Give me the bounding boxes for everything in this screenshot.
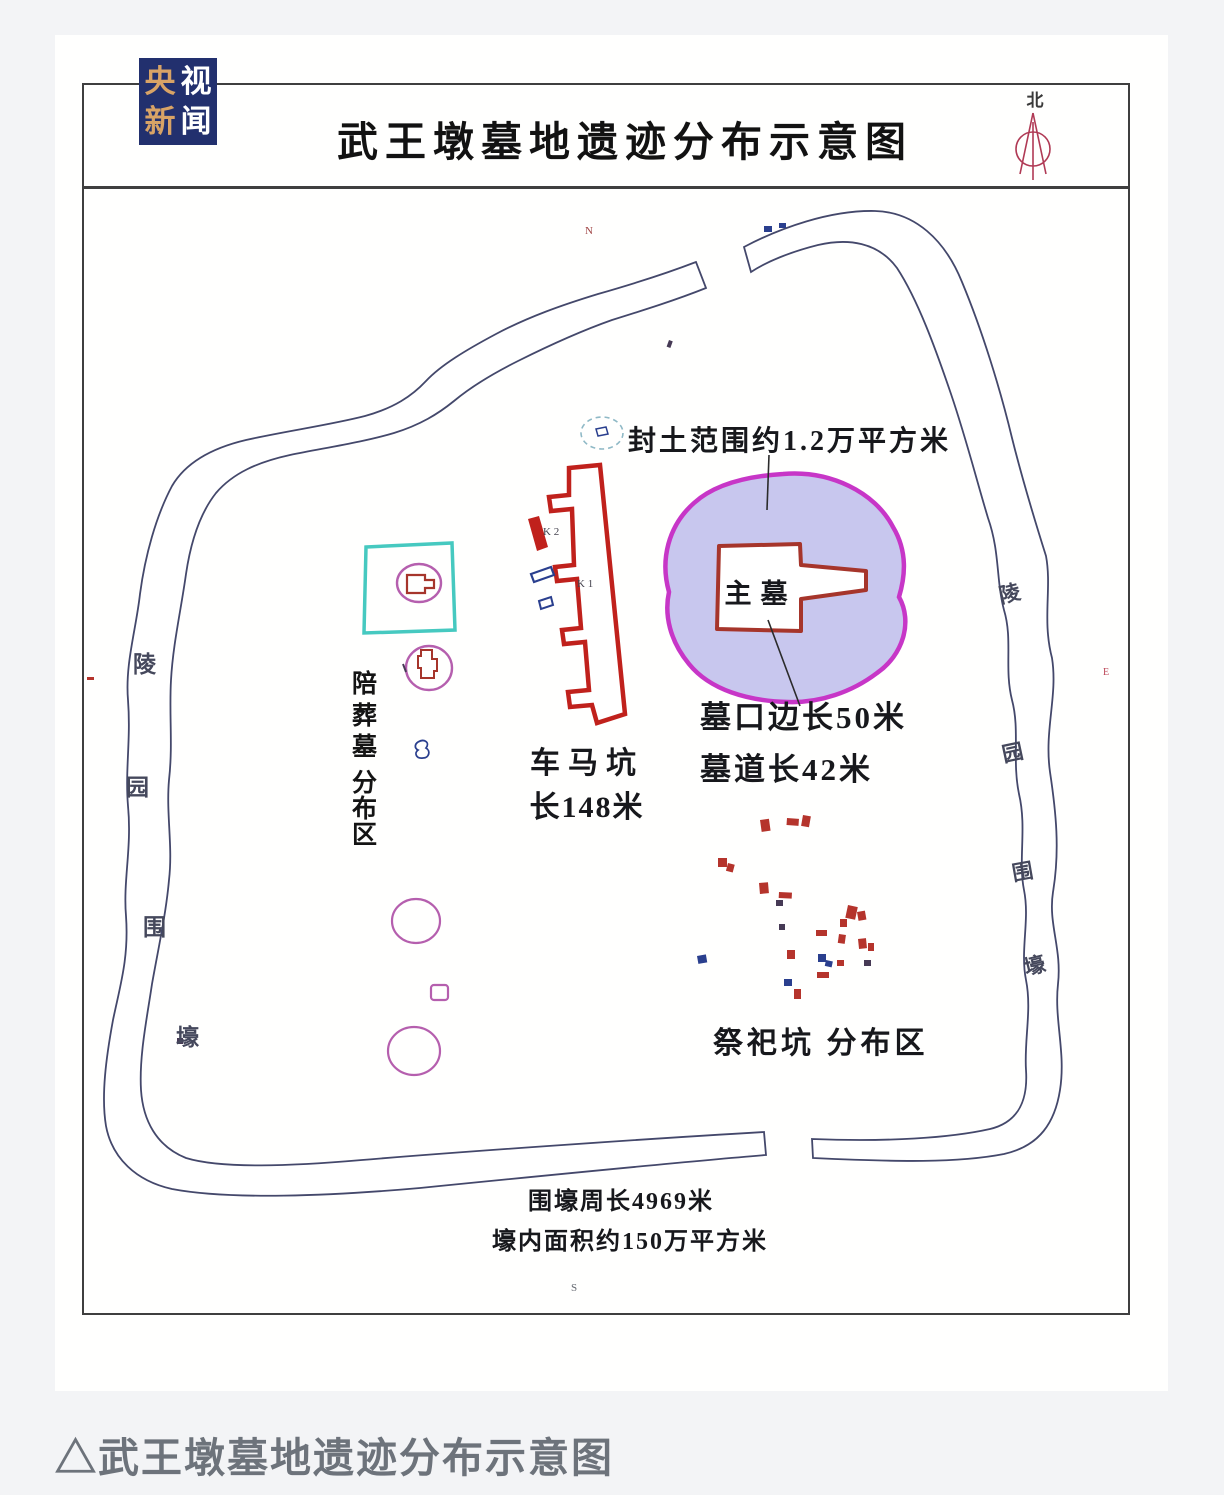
tiny-mark-n: N (585, 225, 593, 237)
tomb-mouth-label: 墓口边长50米 (700, 692, 907, 737)
cctv-news-logo: 央 视 新 闻 (139, 58, 217, 145)
moat-left-char-2: 围 (143, 908, 166, 942)
moat-left-char-0: 陵 (133, 645, 156, 679)
inner-area-label: 壕内面积约150万平方米 (492, 1221, 768, 1256)
accompany-char-2: 墓 (352, 727, 377, 763)
accompany-char-5: 区 (352, 815, 377, 851)
k1-label: K 1 (577, 578, 593, 590)
accompany-char-0: 陪 (352, 664, 377, 700)
fengtu-label: 封土范围约1.2万平方米 (628, 419, 951, 459)
tiny-mark-s: S (571, 1282, 577, 1294)
logo-char: 闻 (181, 106, 212, 137)
main-tomb-label: 主墓 (718, 572, 803, 611)
news-image-page: 央 视 新 闻 武王墩墓地遗迹分布示意图 北 封土范围约1.2万平方米 主墓 墓… (0, 0, 1224, 1495)
chariot-pit-label-line1: 车马坑 (512, 738, 662, 782)
logo-char: 视 (181, 66, 212, 97)
north-label: 北 (1020, 86, 1050, 111)
perimeter-label: 围壕周长4969米 (528, 1181, 714, 1216)
map-frame (82, 83, 1130, 1315)
tomb-passage-label: 墓道长42米 (700, 744, 873, 789)
tiny-mark-e: E (1103, 667, 1109, 678)
image-caption: △武王墩墓地遗迹分布示意图 (55, 1424, 614, 1484)
moat-left-char-3: 壕 (176, 1018, 199, 1052)
header-divider (82, 186, 1130, 189)
logo-char: 新 (145, 106, 176, 137)
sacrificial-label: 祭祀坑 分布区 (713, 1018, 929, 1062)
moat-left-char-1: 园 (126, 768, 149, 802)
chariot-pit-label-line2: 长148米 (512, 782, 662, 826)
map-title: 武王墩墓地遗迹分布示意图 (240, 108, 1010, 168)
logo-char: 央 (145, 66, 176, 97)
k2-label: K 2 (543, 526, 559, 538)
